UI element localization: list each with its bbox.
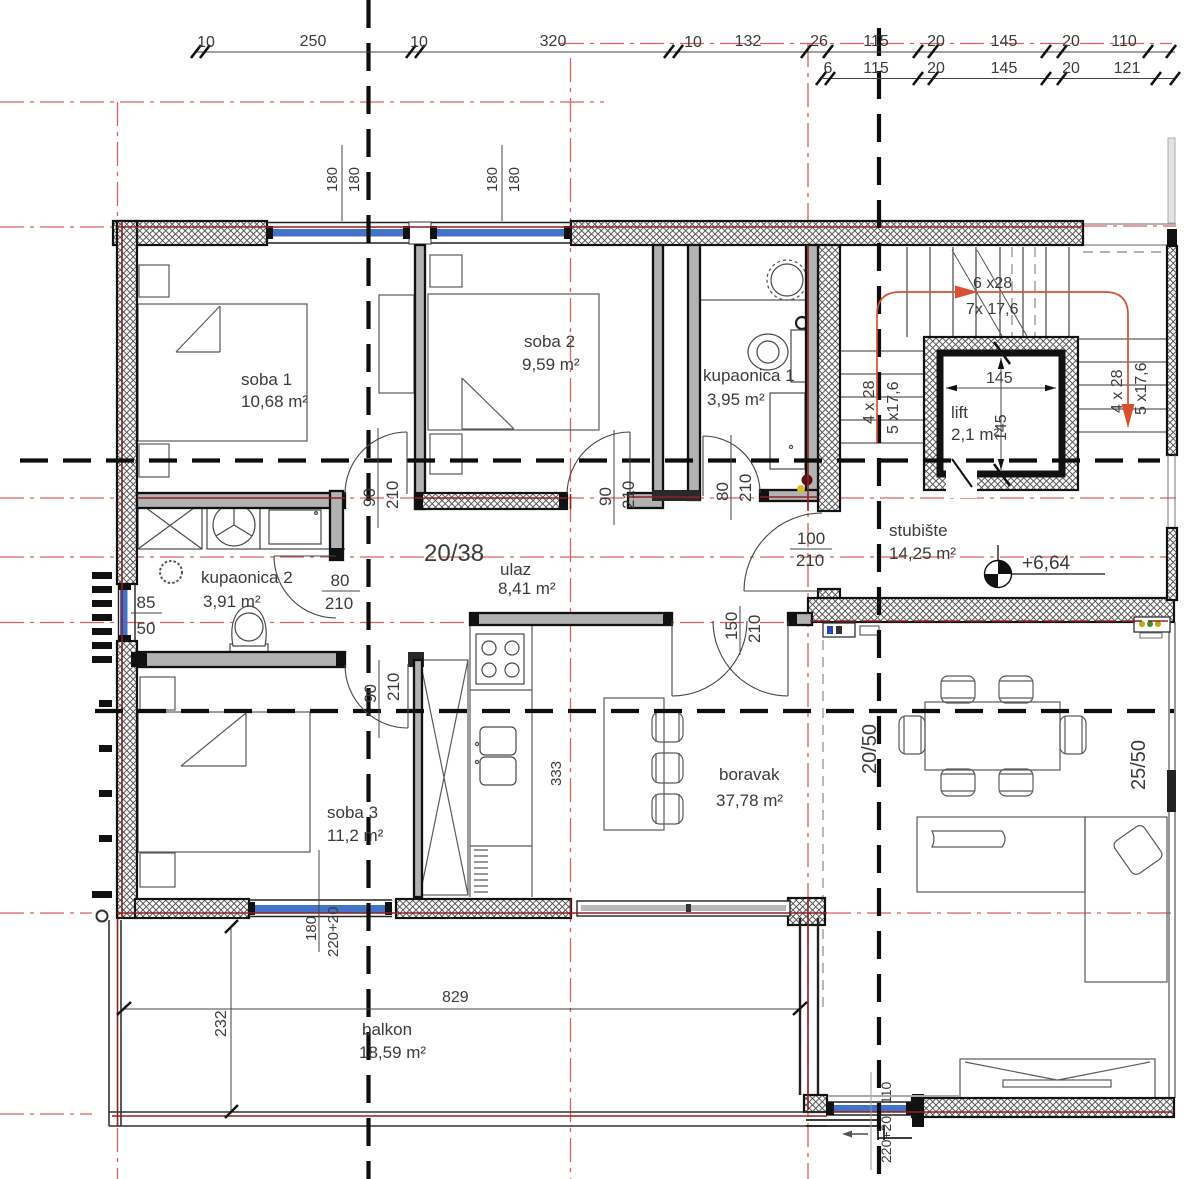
svg-text:20/50: 20/50: [859, 724, 881, 774]
svg-text:20/38: 20/38: [424, 540, 484, 567]
svg-text:110: 110: [878, 1081, 894, 1104]
svg-text:90: 90: [596, 487, 615, 506]
svg-text:210: 210: [619, 481, 638, 509]
svg-text:180: 180: [303, 916, 320, 941]
svg-text:20: 20: [1062, 60, 1080, 77]
svg-text:5 x17,6: 5 x17,6: [885, 381, 902, 434]
svg-text:20: 20: [1062, 33, 1080, 50]
svg-text:6 x28: 6 x28: [973, 275, 1012, 292]
svg-text:50: 50: [137, 619, 156, 638]
svg-text:10,68 m²: 10,68 m²: [241, 392, 308, 411]
svg-text:145: 145: [993, 414, 1010, 441]
svg-text:145: 145: [986, 370, 1013, 387]
svg-text:180: 180: [324, 167, 341, 192]
svg-text:boravak: boravak: [719, 765, 780, 784]
svg-text:232: 232: [213, 1010, 230, 1037]
svg-text:18,59 m²: 18,59 m²: [359, 1043, 426, 1062]
svg-text:9,59 m²: 9,59 m²: [522, 355, 580, 374]
svg-text:6: 6: [824, 60, 833, 77]
svg-text:+6,64: +6,64: [1022, 553, 1071, 574]
svg-text:3,95 m²: 3,95 m²: [707, 390, 765, 409]
svg-text:220+20: 220+20: [878, 1116, 894, 1163]
svg-text:25/50: 25/50: [1128, 740, 1150, 790]
svg-text:20: 20: [927, 33, 945, 50]
svg-text:829: 829: [442, 989, 469, 1006]
svg-text:kupaonica 2: kupaonica 2: [201, 568, 293, 587]
svg-text:110: 110: [1111, 33, 1137, 50]
svg-text:145: 145: [991, 60, 1018, 77]
svg-text:soba 1: soba 1: [241, 370, 292, 389]
svg-text:80: 80: [331, 571, 350, 590]
svg-text:121: 121: [1114, 60, 1141, 77]
svg-text:5 x17,6: 5 x17,6: [1133, 362, 1150, 415]
svg-text:8,41 m²: 8,41 m²: [498, 579, 556, 598]
svg-text:20: 20: [927, 60, 945, 77]
svg-text:180: 180: [506, 167, 523, 192]
svg-text:85: 85: [137, 593, 156, 612]
svg-text:210: 210: [384, 673, 403, 701]
svg-text:10: 10: [684, 34, 702, 51]
svg-text:3,91 m²: 3,91 m²: [203, 592, 261, 611]
svg-text:180: 180: [346, 167, 363, 192]
svg-text:ulaz: ulaz: [500, 560, 531, 579]
svg-text:11,2 m²: 11,2 m²: [327, 826, 384, 845]
svg-text:210: 210: [796, 551, 824, 570]
svg-text:210: 210: [325, 594, 353, 613]
svg-text:37,78 m²: 37,78 m²: [716, 791, 783, 810]
svg-text:lift: lift: [951, 403, 968, 422]
svg-text:4 x 28: 4 x 28: [861, 380, 878, 424]
svg-text:4 x 28: 4 x 28: [1109, 369, 1126, 413]
svg-text:210: 210: [745, 615, 764, 643]
svg-text:180: 180: [484, 167, 501, 192]
svg-text:115: 115: [863, 33, 889, 50]
svg-text:80: 80: [713, 482, 732, 501]
svg-text:220+20: 220+20: [325, 907, 342, 957]
svg-text:10: 10: [197, 34, 215, 51]
svg-text:14,25 m²: 14,25 m²: [889, 544, 956, 563]
svg-text:soba 2: soba 2: [524, 332, 575, 351]
svg-text:100: 100: [797, 529, 825, 548]
svg-text:90: 90: [360, 488, 379, 507]
svg-text:250: 250: [300, 33, 327, 50]
svg-text:26: 26: [810, 33, 828, 50]
svg-text:90: 90: [361, 684, 380, 703]
svg-text:soba 3: soba 3: [327, 803, 378, 822]
svg-text:132: 132: [735, 33, 762, 50]
svg-text:210: 210: [736, 474, 755, 502]
svg-text:stubište: stubište: [889, 521, 948, 540]
svg-text:7x 17,6: 7x 17,6: [966, 301, 1019, 318]
svg-text:kupaonica 1: kupaonica 1: [703, 366, 795, 385]
svg-text:210: 210: [383, 481, 402, 509]
svg-text:333: 333: [548, 761, 565, 786]
svg-text:145: 145: [991, 33, 1018, 50]
svg-text:320: 320: [540, 33, 567, 50]
svg-text:10: 10: [410, 34, 428, 51]
svg-text:balkon: balkon: [362, 1020, 412, 1039]
svg-text:150: 150: [722, 612, 741, 640]
svg-text:115: 115: [863, 60, 889, 77]
